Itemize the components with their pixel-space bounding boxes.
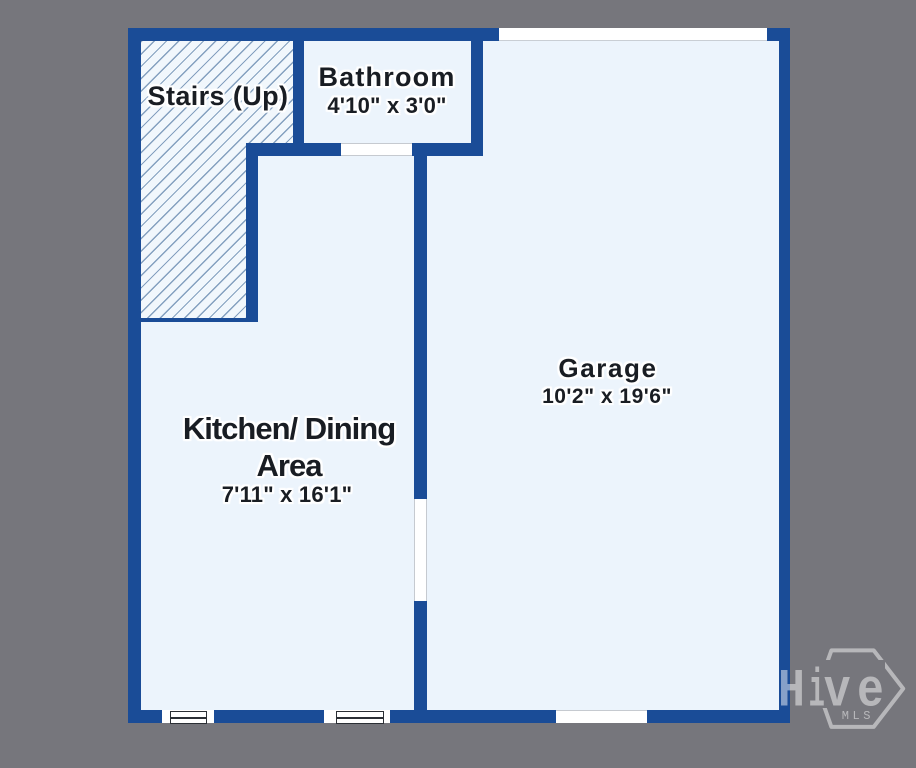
svg-text:i: i — [809, 660, 825, 722]
svg-text:H: H — [778, 661, 805, 722]
svg-text:MLS: MLS — [842, 709, 874, 723]
